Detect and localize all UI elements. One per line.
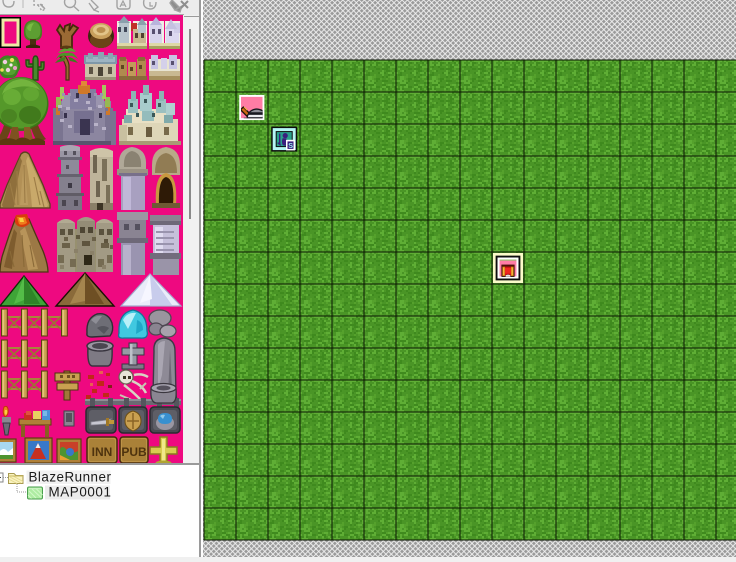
svg-text:PUB: PUB bbox=[121, 445, 147, 459]
svg-text:S: S bbox=[288, 141, 293, 150]
svg-text:INN: INN bbox=[92, 445, 113, 459]
svg-text:BlazeRunner: BlazeRunner bbox=[29, 470, 112, 485]
svg-text:MAP0001: MAP0001 bbox=[49, 484, 112, 499]
